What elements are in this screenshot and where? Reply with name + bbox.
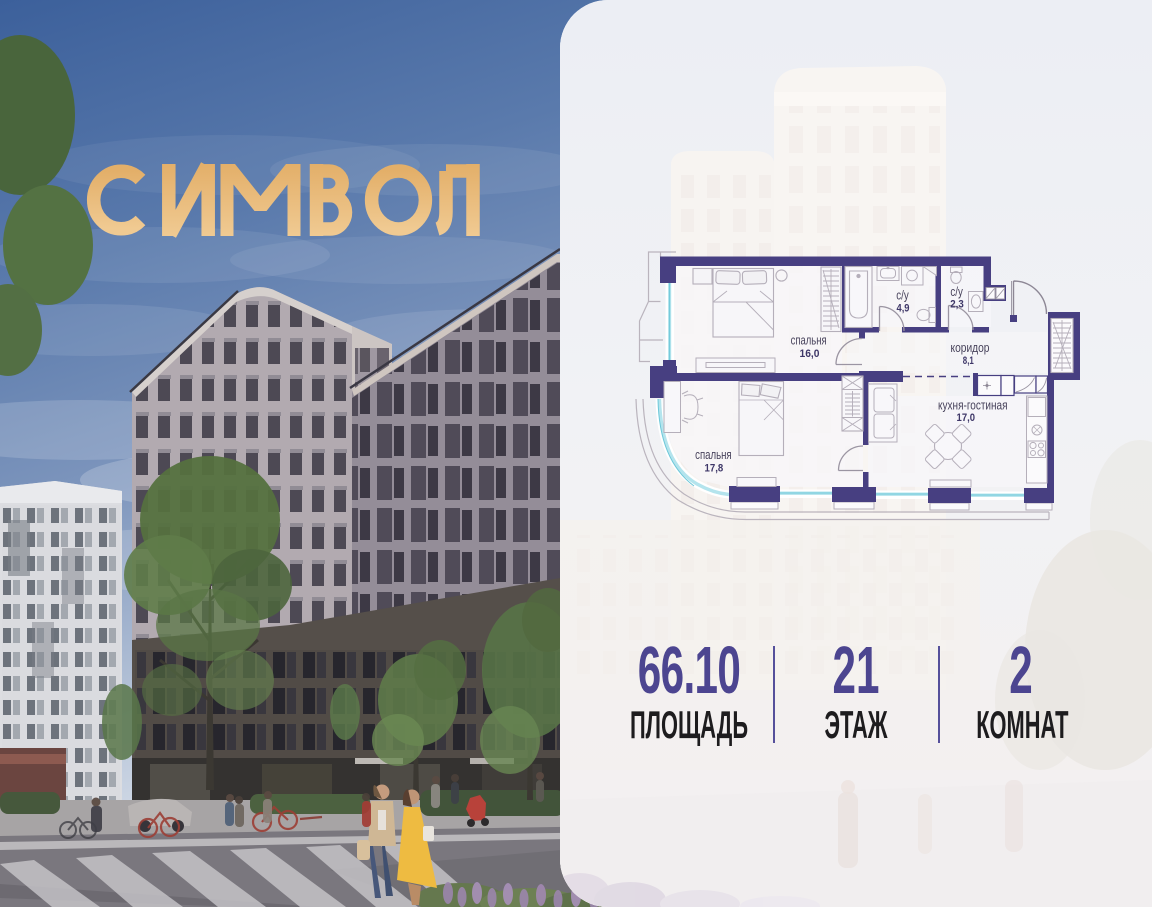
svg-text:с/у: с/у [896,289,909,303]
svg-text:4,9: 4,9 [897,303,910,315]
svg-text:8,1: 8,1 [963,355,974,367]
svg-text:с/у: с/у [950,285,963,299]
svg-text:16,0: 16,0 [800,348,820,360]
svg-text:17,0: 17,0 [957,412,976,424]
svg-text:17,8: 17,8 [705,463,724,475]
svg-text:2,3: 2,3 [950,299,964,311]
svg-text:спальня: спальня [695,448,732,462]
svg-text:коридор: коридор [951,341,990,355]
svg-text:спальня: спальня [791,334,827,348]
svg-text:кухня-гостиная: кухня-гостиная [938,399,1008,413]
